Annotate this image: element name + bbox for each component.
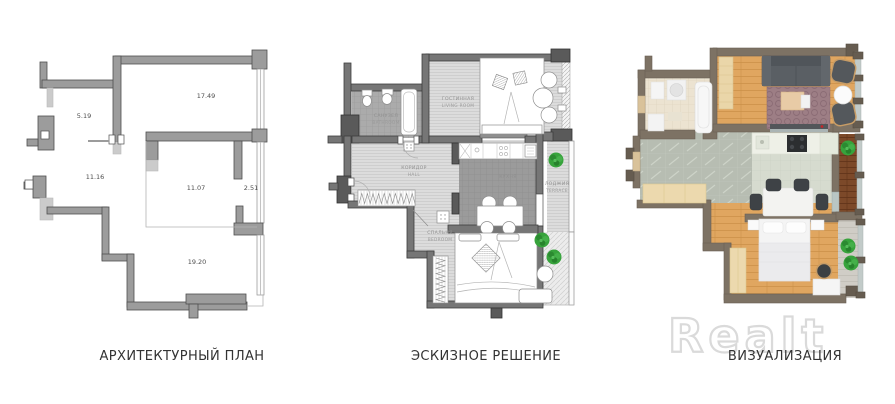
area-5-19: 5.19 <box>77 112 91 120</box>
label-hall-ru: КОРИДОР <box>401 165 427 171</box>
label-kitchen-ru: КУХНЯ <box>499 174 517 180</box>
label-bedroom-ru: СПАЛЬНЯ <box>427 230 453 236</box>
area-19-20: 19.20 <box>188 258 207 266</box>
caption-visualization: ВИЗУАЛИЗАЦИЯ <box>655 349 895 364</box>
label-bedroom-en: BEDROOM <box>428 237 453 243</box>
visualization-plan <box>626 44 865 303</box>
plant-icon <box>547 250 562 265</box>
label-kitchen-en: KITCHEN <box>498 181 519 187</box>
label-hall-en: HALL <box>408 172 420 178</box>
area-11-07: 11.07 <box>187 184 206 192</box>
caption-architectural-plan: АРХИТЕКТУРНЫЙ ПЛАН <box>52 349 312 364</box>
sketch-plan: САНУЗЕЛ BATHROOM ГОСТИННАЯ LIVING ROOM К… <box>328 49 574 318</box>
plant-icon <box>535 233 550 248</box>
architectural-walls <box>24 50 267 318</box>
label-living-ru: ГОСТИННАЯ <box>442 96 474 102</box>
label-bathroom-en: BATHROOM <box>372 120 399 126</box>
architectural-plan: 5.19 17.49 11.16 11.07 2.51 19.20 <box>24 50 267 318</box>
plant-icon <box>841 141 856 156</box>
plant-icon <box>844 256 859 271</box>
label-terrace-en: TERRACE <box>545 188 568 194</box>
area-17-49: 17.49 <box>197 92 216 100</box>
plant-icon <box>841 239 856 254</box>
caption-sketch-solution: ЭСКИЗНОЕ РЕШЕНИЕ <box>356 349 616 364</box>
area-2-51: 2.51 <box>244 184 258 192</box>
label-living-en: LIVING ROOM <box>442 103 475 109</box>
label-terrace-ru: ЛОДЖИЯ <box>545 181 569 187</box>
label-bathroom-ru: САНУЗЕЛ <box>374 113 398 119</box>
area-11-16: 11.16 <box>86 173 105 181</box>
plant-icon <box>549 153 564 168</box>
